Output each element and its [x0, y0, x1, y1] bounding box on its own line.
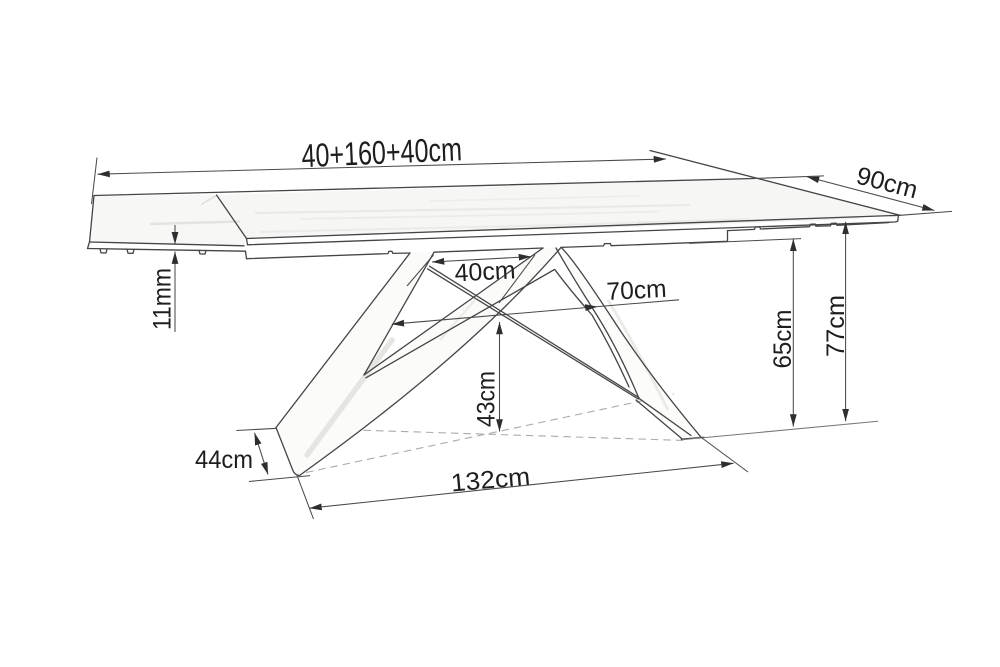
svg-text:65cm: 65cm [769, 310, 797, 369]
svg-text:77cm: 77cm [822, 295, 850, 357]
svg-text:40cm: 40cm [454, 256, 516, 287]
svg-text:11mm: 11mm [149, 268, 177, 330]
svg-text:40+160+40cm: 40+160+40cm [301, 130, 463, 174]
svg-text:43cm: 43cm [473, 371, 501, 427]
svg-text:70cm: 70cm [606, 275, 667, 306]
svg-text:44cm: 44cm [195, 446, 253, 474]
